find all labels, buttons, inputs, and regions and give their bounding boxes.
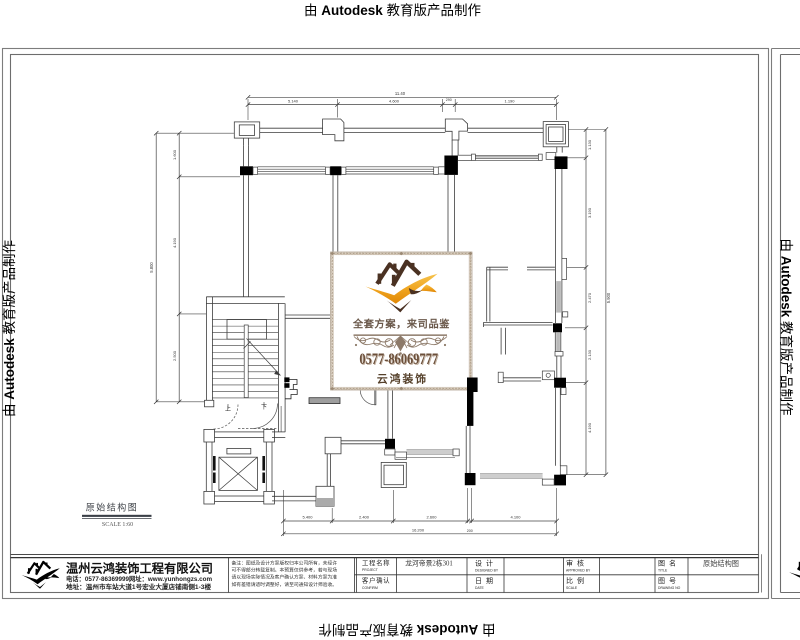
svg-text:APPROVED BY: APPROVED BY bbox=[566, 568, 591, 572]
svg-text:1.600: 1.600 bbox=[172, 149, 177, 160]
svg-text:原始结构图: 原始结构图 bbox=[86, 501, 139, 512]
svg-text:温州云鸿装饰工程有限公司: 温州云鸿装饰工程有限公司 bbox=[66, 560, 213, 575]
svg-text:龙河帝景2栋301: 龙河帝景2栋301 bbox=[405, 558, 453, 567]
svg-text:审 核: 审 核 bbox=[566, 559, 585, 568]
svg-text:16.200: 16.200 bbox=[412, 528, 425, 533]
svg-text:原始结构图: 原始结构图 bbox=[703, 559, 739, 568]
svg-text:1.190: 1.190 bbox=[504, 99, 515, 104]
svg-text:设 计: 设 计 bbox=[475, 559, 494, 568]
svg-text:图 名: 图 名 bbox=[658, 559, 677, 568]
svg-text:DATE: DATE bbox=[475, 586, 485, 590]
svg-text:DRAWING NO: DRAWING NO bbox=[658, 586, 681, 590]
svg-text:4.600: 4.600 bbox=[389, 99, 400, 104]
svg-text:2.600: 2.600 bbox=[426, 515, 437, 520]
svg-text:全套方案，来司品鉴: 全套方案，来司品鉴 bbox=[352, 317, 450, 330]
svg-text:备注：图纸及设计方案版权归本公司所有，未经许: 备注：图纸及设计方案版权归本公司所有，未经许 bbox=[232, 559, 338, 566]
svg-text:3.190: 3.190 bbox=[587, 207, 592, 218]
svg-text:SCALE: SCALE bbox=[566, 586, 578, 590]
svg-text:比 例: 比 例 bbox=[566, 576, 585, 585]
svg-text:PROJECT: PROJECT bbox=[362, 568, 378, 572]
svg-text:如有差错请适时调整好，请至司通知设计师验收。: 如有差错请适时调整好，请至司通知设计师验收。 bbox=[232, 581, 338, 588]
svg-text:5.900: 5.900 bbox=[606, 292, 611, 303]
svg-text:1.130: 1.130 bbox=[587, 139, 592, 150]
svg-text:2.500: 2.500 bbox=[172, 350, 177, 361]
svg-text:由 Autodesk 教育版产品制作: 由 Autodesk 教育版产品制作 bbox=[318, 622, 495, 637]
svg-text:5.400: 5.400 bbox=[302, 515, 313, 520]
svg-text:客户确认: 客户确认 bbox=[362, 575, 390, 584]
svg-text:4.190: 4.190 bbox=[587, 422, 592, 433]
svg-text:SCALE 1:60: SCALE 1:60 bbox=[102, 522, 133, 528]
svg-text:工程名称: 工程名称 bbox=[362, 558, 390, 567]
svg-text:请以现场实际情况及客户确认方案、材料方案为准: 请以现场实际情况及客户确认方案、材料方案为准 bbox=[232, 574, 338, 581]
svg-text:200: 200 bbox=[467, 529, 473, 533]
svg-text:由 Autodesk 教育版产品制作: 由 Autodesk 教育版产品制作 bbox=[779, 238, 794, 415]
svg-text:5.140: 5.140 bbox=[288, 99, 299, 104]
svg-text:DESIGNED BY: DESIGNED BY bbox=[475, 568, 499, 572]
svg-text:CONFIRM: CONFIRM bbox=[362, 586, 378, 590]
svg-text:4.190: 4.190 bbox=[172, 237, 177, 248]
svg-text:11.40: 11.40 bbox=[395, 91, 406, 96]
svg-text:地址：温州市车站大道1号宏业大厦店铺南侧1-3楼: 地址：温州市车站大道1号宏业大厦店铺南侧1-3楼 bbox=[66, 582, 212, 591]
svg-text:图 号: 图 号 bbox=[658, 577, 677, 585]
svg-text:由 Autodesk 教育版产品制作: 由 Autodesk 教育版产品制作 bbox=[304, 3, 481, 18]
svg-text:2.400: 2.400 bbox=[359, 515, 370, 520]
svg-text:2.470: 2.470 bbox=[587, 292, 592, 303]
svg-text:5.800: 5.800 bbox=[149, 262, 154, 273]
svg-text:云鸿装饰: 云鸿装饰 bbox=[377, 372, 428, 386]
svg-text:4.100: 4.100 bbox=[510, 515, 521, 520]
svg-text:290: 290 bbox=[446, 98, 452, 102]
svg-text:电话：0577-86369999网址：www.yunhong: 电话：0577-86369999网址：www.yunhongzs.com bbox=[66, 574, 212, 583]
svg-text:由 Autodesk 教育版产品制作: 由 Autodesk 教育版产品制作 bbox=[2, 240, 17, 417]
svg-text:2.130: 2.130 bbox=[587, 349, 592, 360]
svg-text:可不得部分转载复制。本预算仅供参考，若与现场: 可不得部分转载复制。本预算仅供参考，若与现场 bbox=[232, 567, 338, 574]
svg-text:TITLE: TITLE bbox=[658, 568, 668, 572]
svg-text:日 期: 日 期 bbox=[475, 577, 494, 585]
svg-text:0577-86069777: 0577-86069777 bbox=[359, 351, 438, 368]
